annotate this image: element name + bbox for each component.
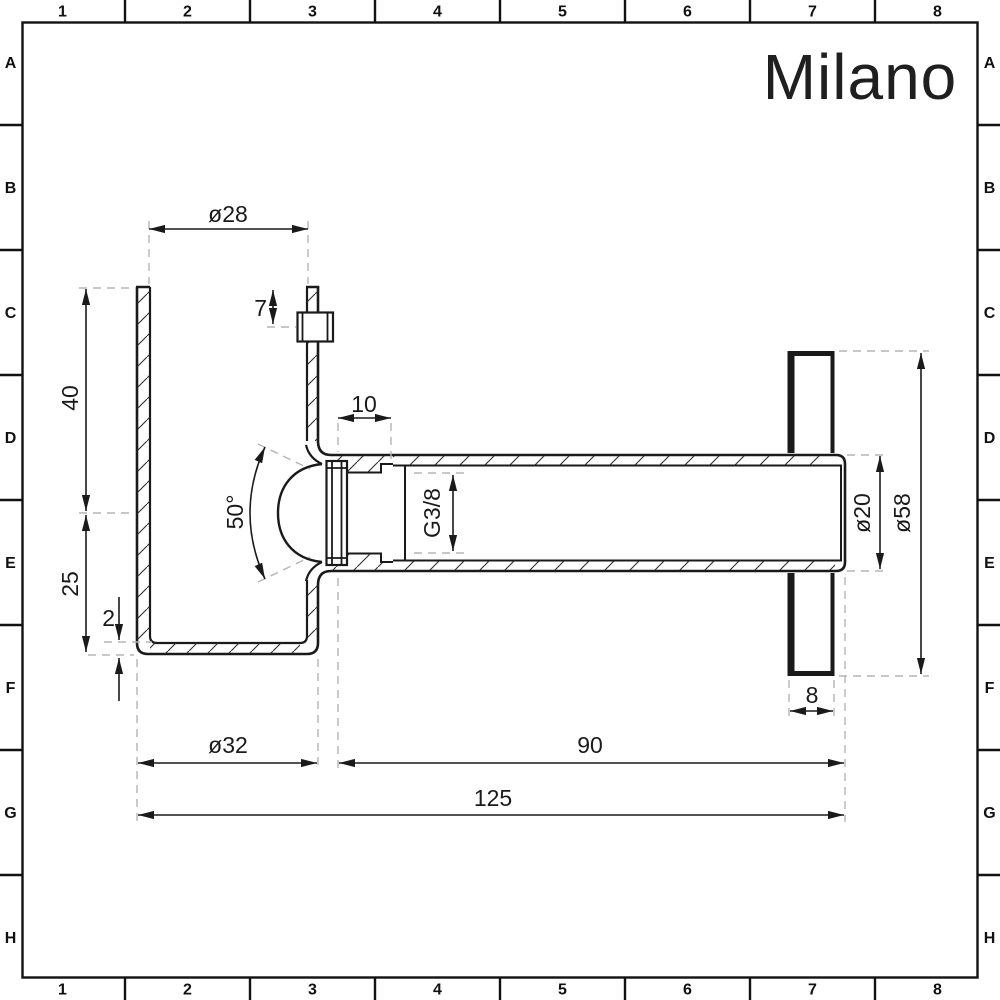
hatch-notch-bottom [381,562,393,570]
pipe-body-fill [320,453,846,573]
grid-col-label: 2 [183,4,192,21]
grid-row-label: D [5,430,17,447]
grid-col-label: 4 [433,4,442,21]
grid-row-label: C [5,305,17,322]
grid-col-label: 1 [58,4,67,21]
grid-col-label: 3 [308,982,317,999]
grid-col-label: 6 [683,982,692,999]
dim-text-thread-size: G3/8 [419,488,445,538]
dim-text-overall-length: 125 [474,785,512,811]
dim-text-pipe-diameter: ø20 [849,493,875,533]
grid-row-label: G [983,805,995,822]
grid-col-label: 8 [933,982,942,999]
dim-text-pin-offset: 7 [254,295,267,321]
dim-text-inlet-diameter: ø28 [208,201,248,227]
grid-row-label: G [4,805,16,822]
hatch-bottom-wall [150,643,300,654]
dim-text-seat-angle: 50° [222,495,248,530]
grid-row-label: E [5,555,16,572]
dim-text-pipe-length: 90 [577,732,603,758]
hatch-pipe-bottom [393,561,835,571]
hatch-right-wall-upper [308,288,319,441]
grid-row-label: B [5,180,17,197]
brand-logo: Milano [763,41,958,113]
grid-col-label: 1 [58,982,67,999]
grid-col-label: 7 [808,4,817,21]
dim-text-upper-height: 40 [57,385,83,411]
valve-washer [327,461,348,565]
part-geometry [136,287,846,676]
technical-drawing-svg: 1 2 3 4 5 6 7 8 1 2 3 4 5 6 7 8 A B C D … [0,0,1000,1000]
grid-col-label: 5 [558,4,567,21]
hatch-pipe-top [393,456,835,466]
grid-col-label: 3 [308,4,317,21]
grid-col-label: 7 [808,982,817,999]
cup-inner-outline [150,287,307,643]
grid-col-label: 8 [933,4,942,21]
grid-row-label: H [5,930,17,947]
wall-pin [298,313,334,342]
grid-col-label: 2 [183,982,192,999]
grid-row-label: E [984,555,995,572]
dim-text-flange-diameter: ø58 [889,493,915,533]
grid-row-label: F [6,680,16,697]
dim-text-body-diameter: ø32 [208,732,248,758]
hatch-left-wall [138,288,150,642]
grid-col-label: 4 [433,982,442,999]
drawing-sheet: 1 2 3 4 5 6 7 8 1 2 3 4 5 6 7 8 A B C D … [0,0,1000,1000]
valve-dome [278,464,322,562]
dim-text-thread-depth: 10 [351,391,377,417]
grid-row-label: D [984,430,996,447]
dim-text-lower-height: 25 [57,571,83,597]
grid-row-label: A [984,55,996,72]
grid-row-label: H [984,930,996,947]
dim-arc-seat-angle [250,447,265,579]
grid-row-label: A [5,55,17,72]
dim-text-flange-thickness: 8 [806,682,819,708]
grid-row-label: F [985,680,995,697]
angle-rays [258,444,310,582]
grid-col-label: 6 [683,4,692,21]
grid-row-label: B [984,180,996,197]
grid-row-label: C [984,305,996,322]
grid-col-label: 5 [558,982,567,999]
dim-text-wall-thickness: 2 [102,605,115,631]
hatch-right-wall-lower [308,585,319,642]
